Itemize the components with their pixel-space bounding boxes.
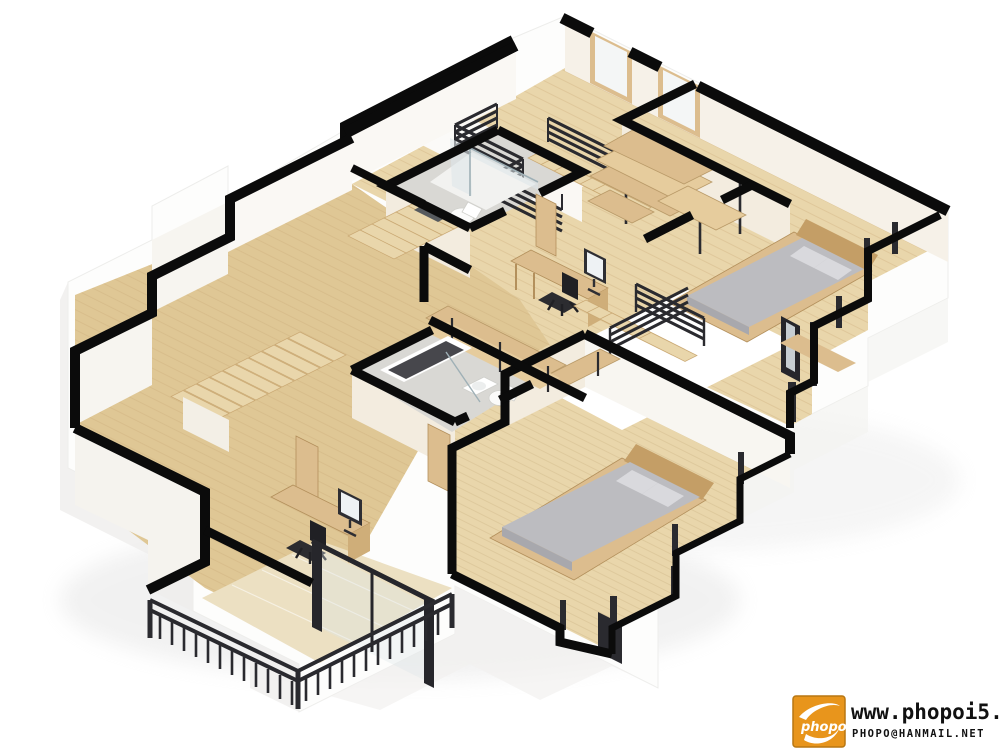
floor-plan-render: phopo www.phopoi5.net PHOPO@HANMAIL.NET bbox=[0, 0, 1000, 750]
bath-lower-door bbox=[428, 424, 450, 492]
watermark-url: www.phopoi5.net bbox=[851, 700, 1000, 724]
bath-top-door bbox=[536, 194, 556, 256]
floor-plan-page: phopo www.phopoi5.net PHOPO@HANMAIL.NET bbox=[0, 0, 1000, 750]
watermark: phopo www.phopoi5.net PHOPO@HANMAIL.NET bbox=[793, 696, 1000, 747]
watermark-email: PHOPO@HANMAIL.NET bbox=[852, 728, 985, 740]
watermark-logo-text: phopo bbox=[800, 720, 847, 735]
